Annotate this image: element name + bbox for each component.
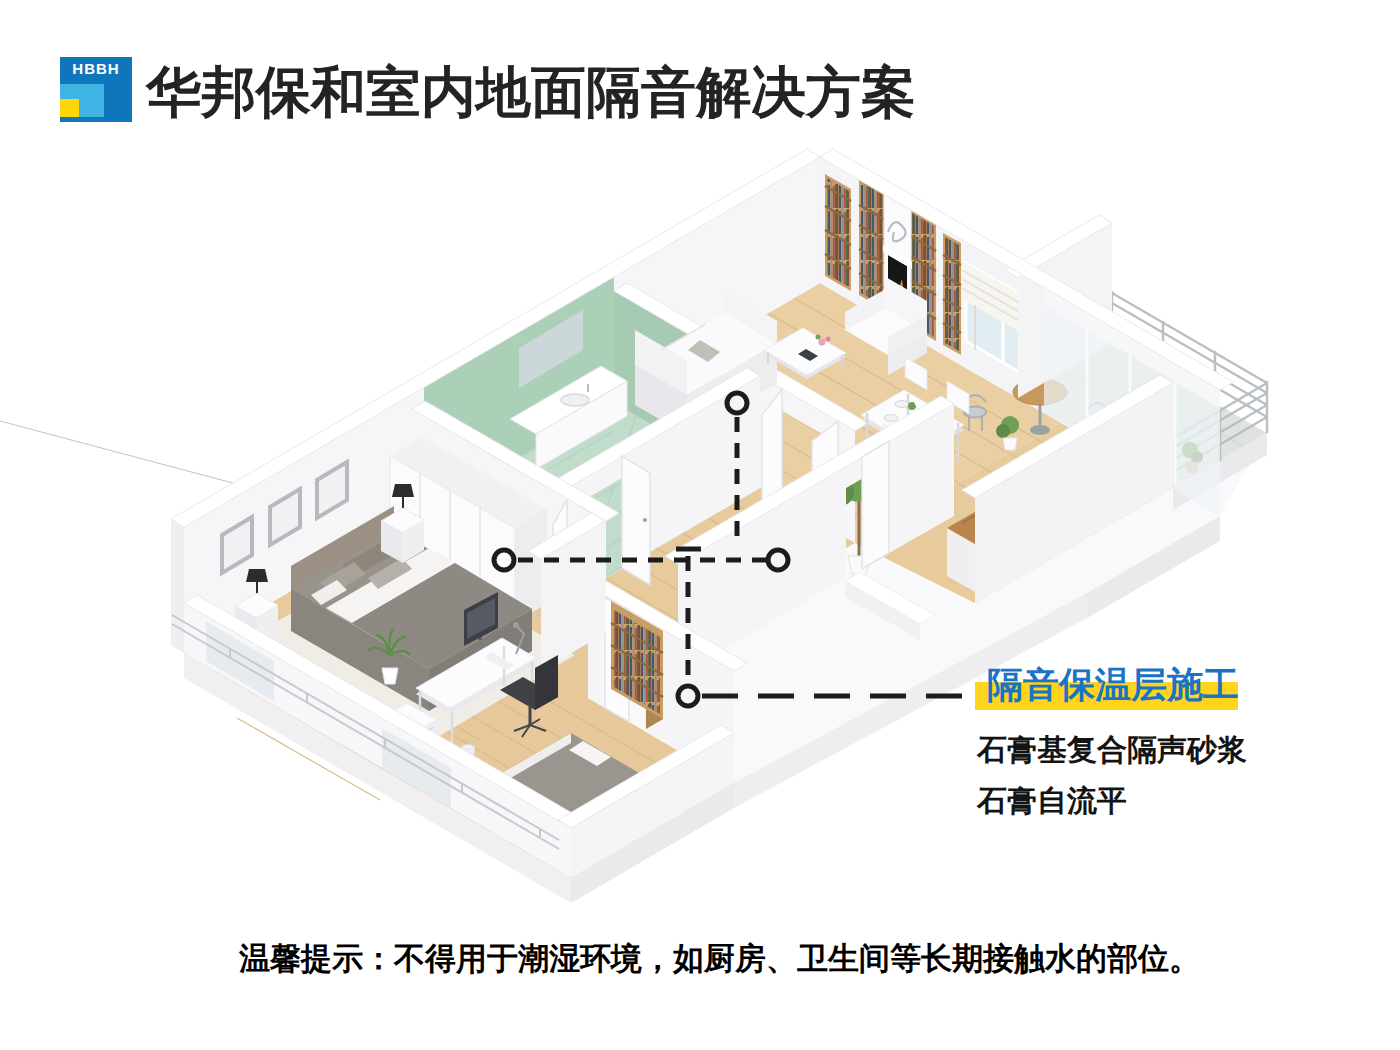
callout-item: 石膏自流平: [977, 781, 1127, 822]
table-lamp: [246, 569, 268, 582]
door-leaf: [862, 441, 889, 569]
floor-plan-illustration: [0, 0, 1400, 1050]
logo-text: HBBH: [60, 60, 132, 77]
brand-logo: HBBH: [60, 57, 132, 122]
logo-yellow-square: [60, 99, 79, 117]
table-lamp: [392, 484, 414, 497]
footer-tip: 温馨提示：不得用于潮湿环境，如厨房、卫生间等长期接触水的部位。: [239, 938, 1200, 980]
page-title: 华邦保和室内地面隔音解决方案: [146, 56, 946, 130]
callout-item: 石膏基复合隔声砂浆: [977, 730, 1247, 771]
callout-label: 隔音保温层施工: [987, 661, 1247, 710]
